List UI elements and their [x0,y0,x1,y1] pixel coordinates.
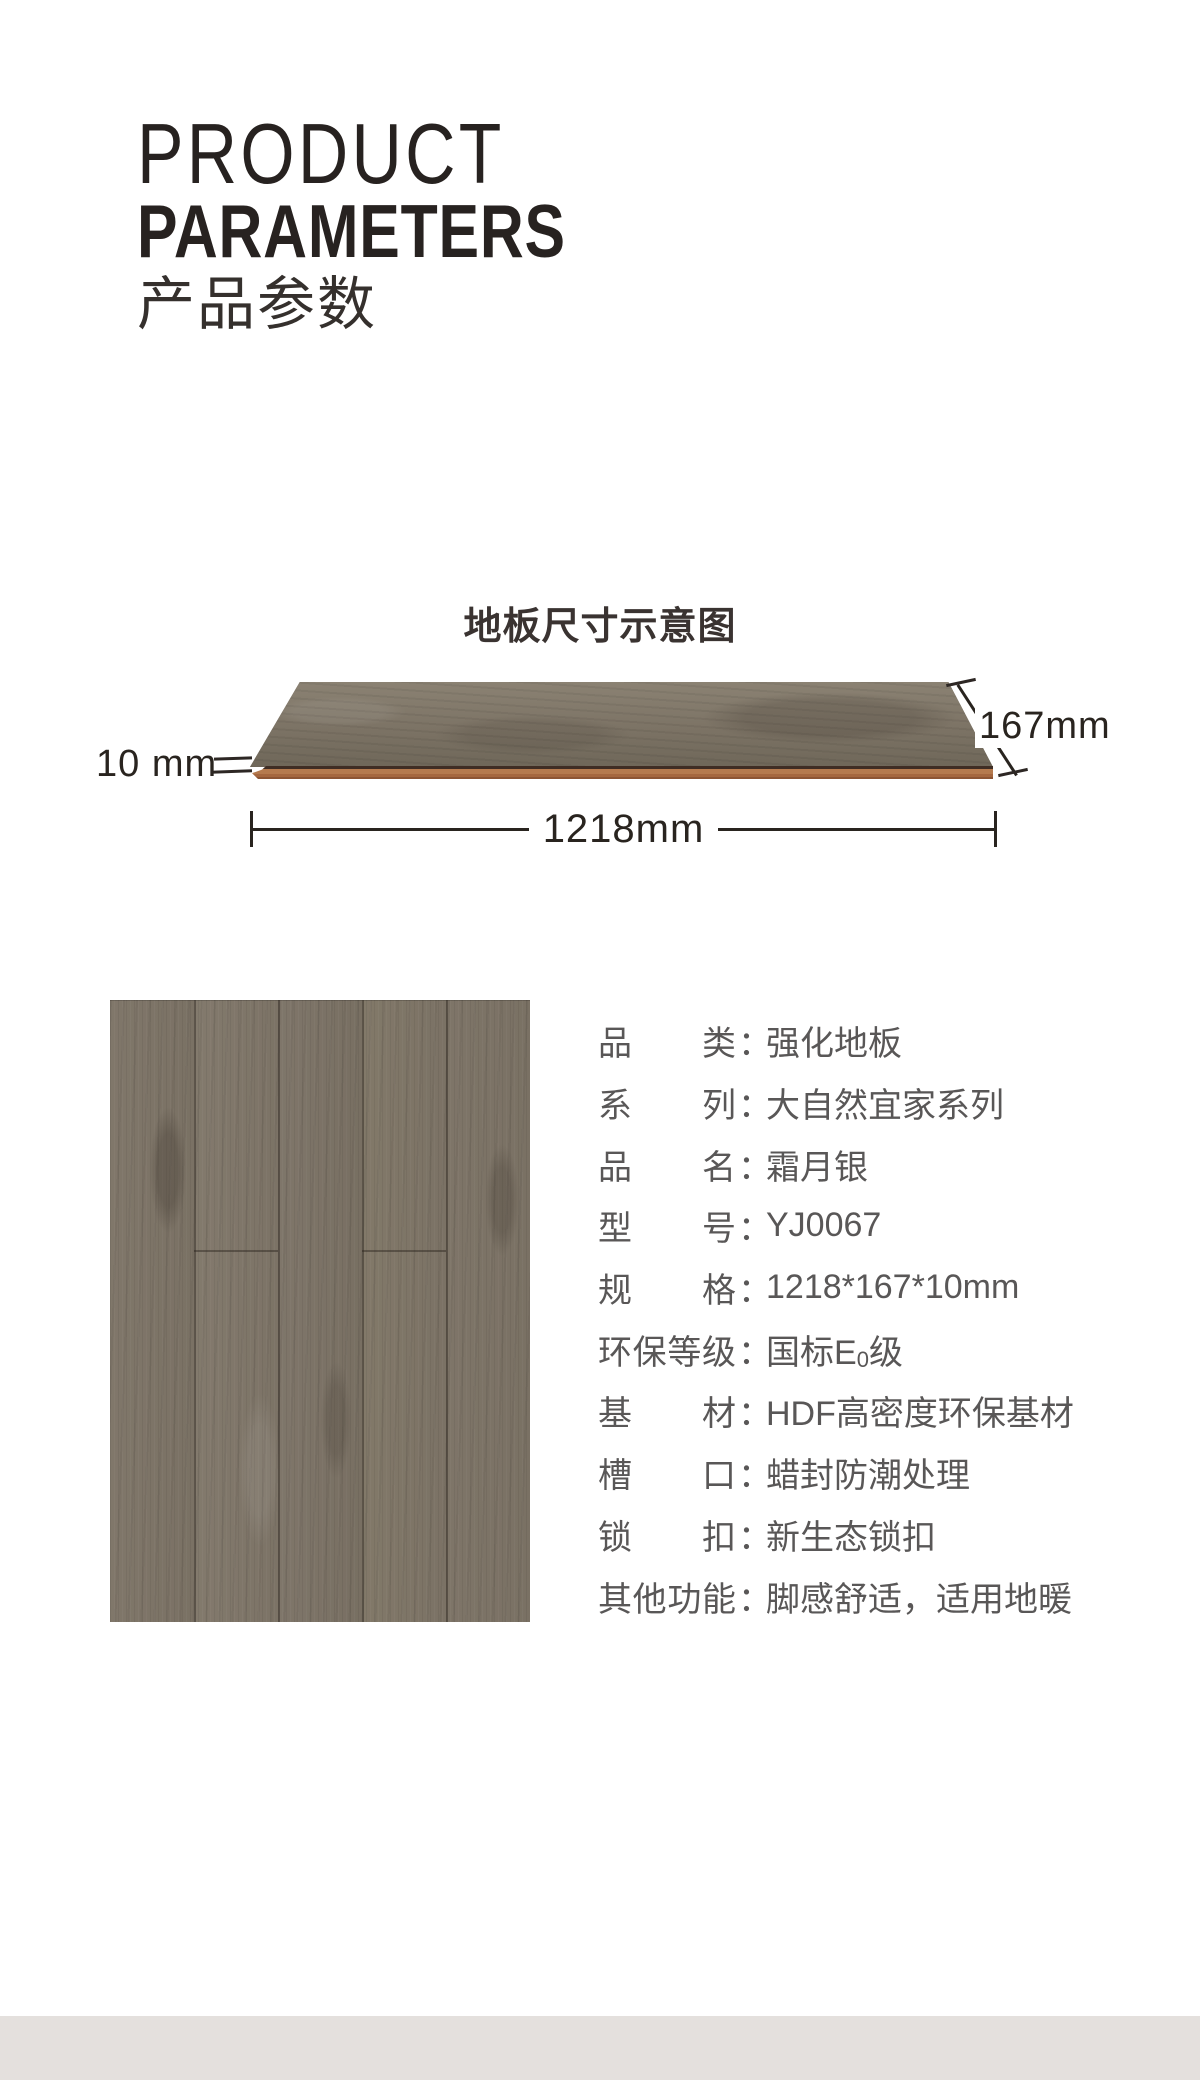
spec-value: 霜月银 [766,1140,868,1189]
plank-seam-horizontal [194,1250,278,1252]
diagram-heading: 地板尺寸示意图 [0,595,1200,650]
spec-row: 基材：HDF高密度环保基材 [598,1380,1138,1442]
spec-list: 品类：强化地板 系列：大自然宜家系列 品名：霜月银 型号：YJ0067 规格：1… [598,1010,1138,1627]
spec-row: 锁扣：新生态锁扣 [598,1504,1138,1566]
thickness-tick-top [214,756,252,760]
spec-label: 品名 [598,1140,736,1189]
spec-value: HDF高密度环保基材 [766,1386,1074,1435]
page-title-line1: PRODUCT [137,112,505,197]
page-title-chinese: 产品参数 [137,272,377,338]
spec-row: 其他功能：脚感舒适，适用地暖 [598,1565,1138,1627]
width-dimension-tick-top [946,678,976,687]
spec-row: 型号：YJ0067 [598,1195,1138,1257]
spec-colon: ： [738,1078,766,1127]
spec-colon: ： [738,1201,766,1250]
spec-label: 规格 [598,1263,736,1312]
spec-label: 基材 [598,1386,736,1435]
length-dimension-tick-right [994,811,997,847]
spec-colon: ： [738,1140,766,1189]
plank-top-surface [250,682,993,767]
spec-colon: ： [738,1325,766,1374]
spec-row: 规格：1218*167*10mm [598,1257,1138,1319]
spec-value: 大自然宜家系列 [766,1078,1004,1127]
spec-label: 系列 [598,1078,736,1127]
page-title-line2: PARAMETERS [137,194,566,269]
spec-colon: ： [738,1386,766,1435]
spec-row: 品类：强化地板 [598,1010,1138,1072]
spec-colon: ： [738,1510,766,1559]
plank-seam-vertical [446,1000,448,1622]
length-dimension-line-right [718,828,994,831]
spec-row: 系列：大自然宜家系列 [598,1072,1138,1134]
spec-value: 新生态锁扣 [766,1510,936,1559]
spec-value-subscript: 0 [857,1347,869,1372]
product-texture-image [110,1000,530,1622]
plank-seam-horizontal [362,1250,446,1252]
plank-seam-vertical [194,1000,196,1622]
width-dimension-label: 167mm [975,704,1115,748]
spec-row: 槽口：蜡封防潮处理 [598,1442,1138,1504]
length-dimension: 1218mm [250,808,997,850]
spec-value: 蜡封防潮处理 [766,1448,970,1497]
product-parameters-page: PRODUCT PARAMETERS 产品参数 地板尺寸示意图 10 mm 16… [0,0,1200,2080]
spec-value: 脚感舒适，适用地暖 [766,1572,1072,1621]
spec-label: 环保等级 [598,1325,736,1374]
length-dimension-line-left [253,828,529,831]
spec-value: 强化地板 [766,1016,902,1065]
plank-seam-vertical [278,1000,280,1622]
spec-row: 环保等级：国标E0级 [598,1318,1138,1380]
spec-value: 1218*167*10mm [766,1268,1019,1307]
spec-value: 国标E0级 [766,1325,903,1374]
thickness-tick-bottom [211,769,252,773]
spec-label: 锁扣 [598,1510,736,1559]
spec-value-prefix: 国标E [766,1334,857,1372]
spec-value: YJ0067 [766,1206,881,1245]
plank-edge-strip [252,766,993,779]
spec-label: 品类 [598,1016,736,1065]
spec-label: 槽口 [598,1448,736,1497]
spec-colon: ： [738,1016,766,1065]
spec-row: 品名：霜月银 [598,1133,1138,1195]
spec-colon: ： [738,1263,766,1312]
plank-seam-vertical [362,1000,364,1622]
thickness-dimension-label: 10 mm [96,744,217,784]
spec-colon: ： [738,1572,766,1621]
footer-band [0,2016,1200,2080]
length-dimension-label: 1218mm [529,808,719,850]
spec-label: 型号 [598,1201,736,1250]
spec-value-suffix: 级 [869,1334,903,1372]
spec-colon: ： [738,1448,766,1497]
spec-label: 其他功能 [598,1572,736,1621]
